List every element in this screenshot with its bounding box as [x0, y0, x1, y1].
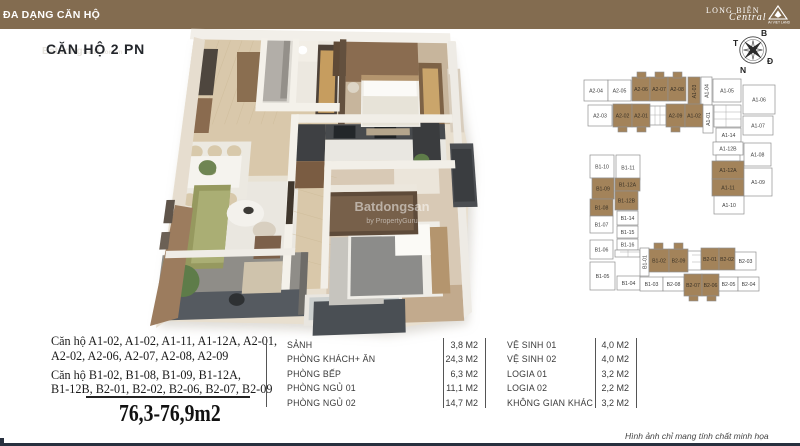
svg-text:B2-01: B2-01	[703, 257, 717, 263]
svg-text:A1-11: A1-11	[721, 186, 735, 192]
svg-text:B2-05: B2-05	[722, 282, 736, 288]
svg-text:B1-02: B1-02	[652, 259, 666, 265]
svg-text:B1-04: B1-04	[622, 281, 636, 287]
svg-text:B1-07: B1-07	[595, 223, 609, 229]
svg-text:A2-07: A2-07	[652, 87, 666, 93]
svg-text:A1-10: A1-10	[722, 203, 736, 209]
svg-text:B1-05: B1-05	[596, 274, 610, 280]
svg-text:B2-07: B2-07	[686, 283, 700, 289]
svg-text:A2-01: A2-01	[634, 114, 648, 120]
svg-text:B2-08: B2-08	[667, 282, 681, 288]
svg-text:A2-04: A2-04	[589, 89, 603, 95]
svg-text:B1-09: B1-09	[596, 187, 610, 193]
svg-text:A2-06: A2-06	[634, 87, 648, 93]
svg-text:A2-02: A2-02	[616, 114, 630, 120]
svg-text:B1-01: B1-01	[643, 255, 649, 269]
svg-text:A1-08: A1-08	[751, 153, 765, 159]
svg-text:A2-09: A2-09	[669, 114, 683, 120]
svg-text:A1-12B: A1-12B	[719, 147, 737, 153]
svg-text:B1-06: B1-06	[595, 248, 609, 254]
svg-text:A1-01: A1-01	[706, 112, 712, 126]
svg-text:B1-16: B1-16	[621, 243, 635, 249]
svg-text:A2-08: A2-08	[670, 87, 684, 93]
svg-text:B1-14: B1-14	[621, 216, 635, 222]
svg-text:B1-12B: B1-12B	[618, 199, 636, 205]
svg-text:Đ: Đ	[767, 56, 773, 66]
svg-text:A1-12A: A1-12A	[719, 168, 737, 174]
svg-text:B2-06: B2-06	[704, 283, 718, 289]
svg-text:A1-03: A1-03	[692, 84, 698, 98]
svg-text:A1-02: A1-02	[687, 114, 701, 120]
svg-text:B1-10: B1-10	[595, 165, 609, 171]
svg-text:A1-14: A1-14	[722, 133, 736, 139]
svg-text:A1-07: A1-07	[751, 124, 765, 130]
svg-text:A1-06: A1-06	[752, 98, 766, 104]
svg-text:A1-04: A1-04	[705, 84, 711, 98]
svg-text:B2-03: B2-03	[739, 259, 753, 265]
svg-text:B2-02: B2-02	[720, 257, 734, 263]
svg-text:B1-03: B1-03	[645, 282, 659, 288]
svg-text:A1-09: A1-09	[751, 180, 765, 186]
svg-text:B1-15: B1-15	[621, 230, 635, 236]
svg-text:B: B	[761, 28, 767, 38]
svg-text:A1-05: A1-05	[720, 89, 734, 95]
svg-text:A2-03: A2-03	[593, 114, 607, 120]
svg-text:B1-12A: B1-12A	[619, 183, 637, 189]
svg-text:A2-05: A2-05	[613, 89, 627, 95]
svg-text:B1-08: B1-08	[595, 206, 609, 212]
svg-text:T: T	[733, 38, 739, 48]
svg-text:B1-11: B1-11	[621, 166, 635, 172]
svg-text:B2-04: B2-04	[742, 282, 756, 288]
svg-text:B2-09: B2-09	[672, 259, 686, 265]
svg-text:N: N	[740, 65, 746, 75]
